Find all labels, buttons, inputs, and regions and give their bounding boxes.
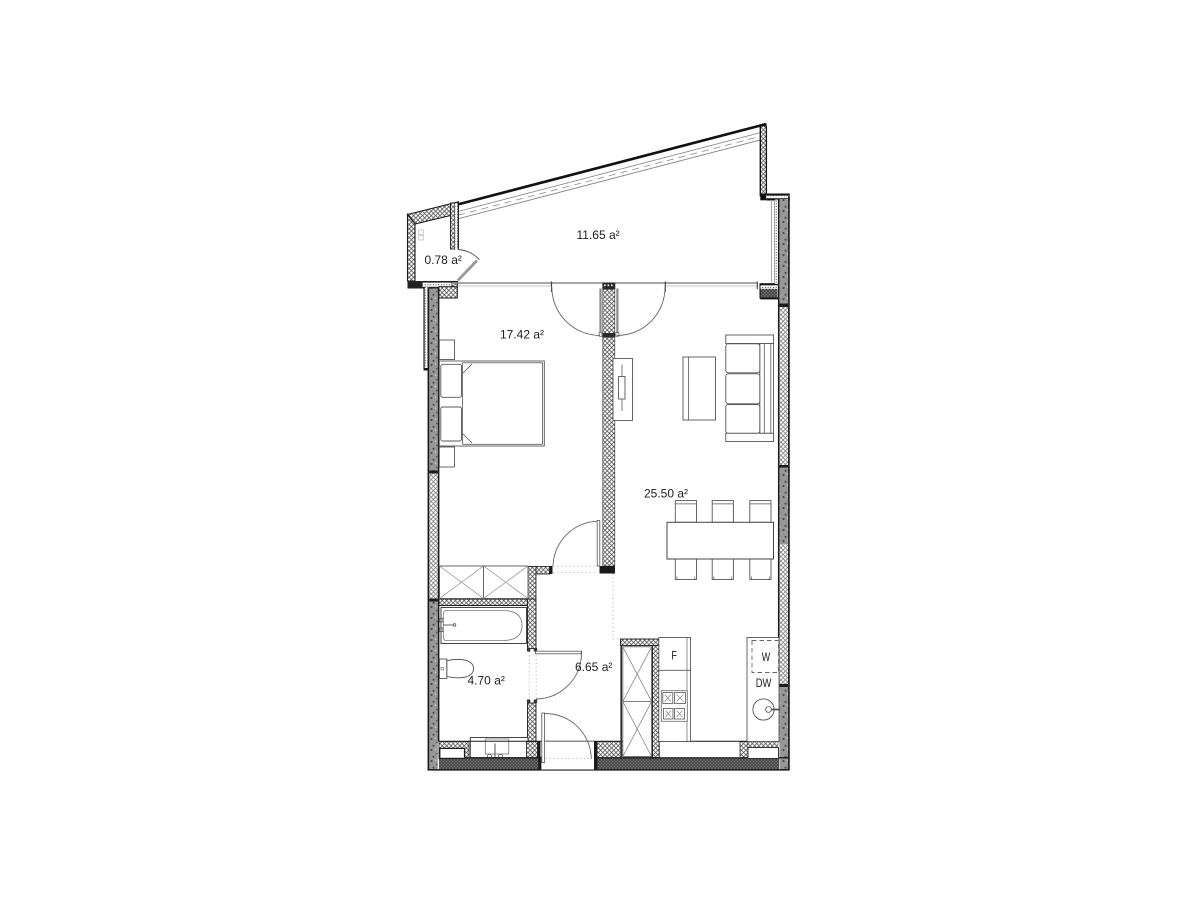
svg-text:11.65 а²: 11.65 а² (577, 228, 620, 242)
svg-text:4.70 а²: 4.70 а² (468, 674, 505, 688)
svg-text:25.50 а²: 25.50 а² (644, 487, 688, 501)
svg-text:6.65 а²: 6.65 а² (575, 660, 612, 674)
svg-text:0.78 а²: 0.78 а² (425, 253, 462, 267)
svg-text:DW: DW (756, 678, 772, 690)
svg-text:17.42 а²: 17.42 а² (500, 328, 544, 342)
svg-text:F: F (671, 649, 677, 663)
svg-text:W: W (762, 650, 771, 664)
